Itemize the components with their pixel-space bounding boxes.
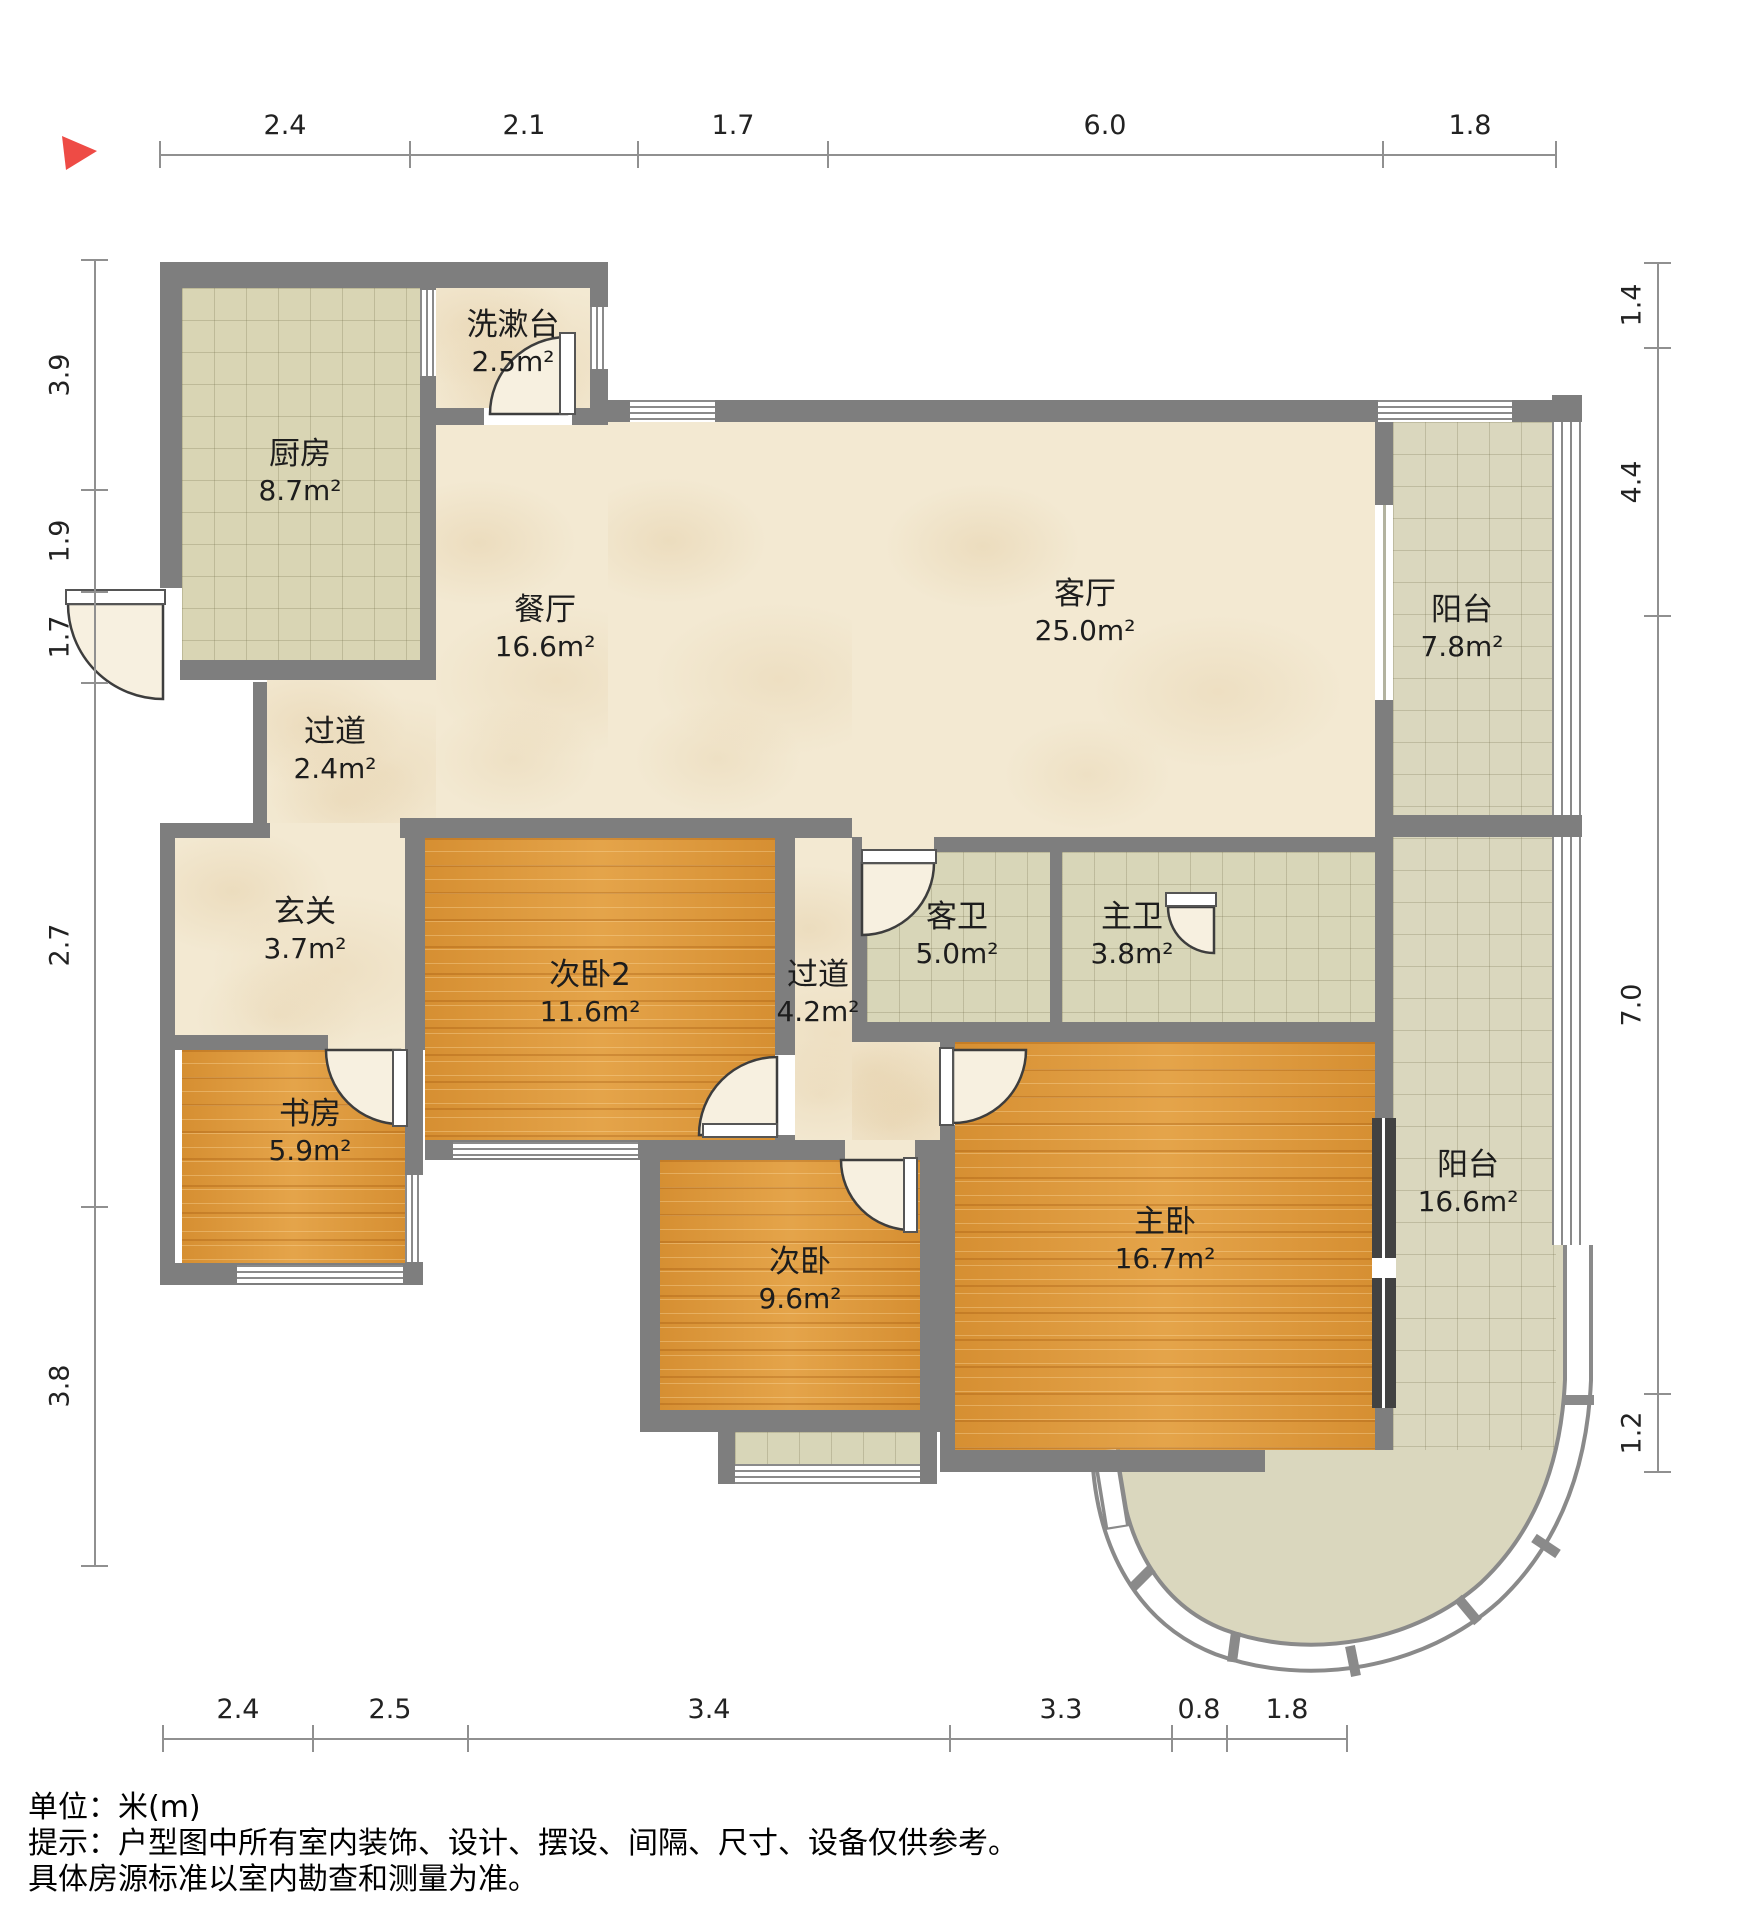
room-area: 2.4m² — [293, 752, 376, 786]
dim-label: 1.7 — [45, 616, 76, 659]
dim-tick — [1555, 141, 1557, 168]
dim-tick — [81, 1565, 108, 1567]
room-name: 书房 — [268, 1096, 351, 1134]
dim-label: 1.8 — [1266, 1694, 1309, 1725]
master-bath-door-swing — [1168, 907, 1214, 953]
room-area: 8.7m² — [258, 474, 341, 508]
dim-tick — [159, 141, 161, 168]
dim-tick — [1382, 141, 1384, 168]
room-area: 2.5m² — [467, 345, 560, 379]
room-area: 7.8m² — [1420, 630, 1503, 664]
room-area: 5.9m² — [268, 1134, 351, 1168]
dim-label: 6.0 — [1084, 110, 1127, 141]
dim-label: 1.9 — [45, 520, 76, 563]
dim-tick — [81, 1206, 108, 1208]
room-name: 洗漱台 — [467, 307, 560, 345]
dim-label: 1.2 — [1617, 1412, 1648, 1455]
dim-tick — [81, 259, 108, 261]
dim-line-left — [94, 260, 96, 1566]
room-area: 16.7m² — [1115, 1242, 1216, 1276]
dim-tick — [81, 682, 108, 684]
bedroom-door-leaf — [904, 1158, 917, 1232]
dim-label: 3.8 — [45, 1365, 76, 1408]
dim-tick — [81, 489, 108, 491]
room-label-guest-bath: 客卫 5.0m² — [915, 899, 998, 971]
room-label-master-bedroom: 主卧 16.7m² — [1115, 1204, 1216, 1276]
dim-line-top — [160, 154, 1556, 156]
room-name: 厨房 — [258, 436, 341, 474]
compass-icon — [62, 136, 97, 170]
room-label-balcony-top: 阳台 7.8m² — [1420, 592, 1503, 664]
dim-label: 2.7 — [45, 924, 76, 967]
dim-tick — [1171, 1725, 1173, 1752]
room-name: 次卧 — [758, 1244, 841, 1282]
bedroom-door-swing — [841, 1160, 911, 1230]
room-name: 阳台 — [1420, 592, 1503, 630]
dim-tick — [637, 141, 639, 168]
dim-label: 2.4 — [264, 110, 307, 141]
room-area: 11.6m² — [540, 995, 641, 1029]
bedroom2-door-leaf — [703, 1124, 777, 1137]
dim-label: 2.4 — [217, 1694, 260, 1725]
washroom-door-leaf — [560, 333, 575, 414]
master-door-swing — [953, 1050, 1026, 1123]
room-area: 3.8m² — [1090, 937, 1173, 971]
room-area: 9.6m² — [758, 1282, 841, 1316]
room-name: 过道 — [776, 957, 859, 995]
room-area: 4.2m² — [776, 995, 859, 1029]
dim-tick — [1644, 347, 1671, 349]
room-name: 客厅 — [1035, 576, 1136, 614]
dim-tick — [312, 1725, 314, 1752]
dim-label: 3.3 — [1040, 1694, 1083, 1725]
study-door-leaf — [393, 1050, 407, 1126]
dim-tick — [1644, 1471, 1671, 1473]
room-area: 25.0m² — [1035, 614, 1136, 648]
dim-tick — [827, 141, 829, 168]
floorplan-canvas: 厨房 8.7m² 洗漱台 2.5m² 餐厅 16.6m² 客厅 25.0m² 阳… — [0, 0, 1757, 1920]
room-area: 16.6m² — [495, 630, 596, 664]
dim-tick — [467, 1725, 469, 1752]
room-label-washroom: 洗漱台 2.5m² — [467, 307, 560, 379]
dim-label: 7.0 — [1617, 984, 1648, 1027]
room-name: 客卫 — [915, 899, 998, 937]
dim-label: 0.8 — [1178, 1694, 1221, 1725]
room-label-study: 书房 5.9m² — [268, 1096, 351, 1168]
dim-label: 3.4 — [688, 1694, 731, 1725]
room-name: 次卧2 — [540, 957, 641, 995]
room-area: 16.6m² — [1418, 1185, 1519, 1219]
room-label-kitchen: 厨房 8.7m² — [258, 436, 341, 508]
dim-label: 1.7 — [712, 110, 755, 141]
room-area: 3.7m² — [263, 932, 346, 966]
dim-tick — [949, 1725, 951, 1752]
room-name: 过道 — [293, 714, 376, 752]
dim-line-bottom — [163, 1738, 1347, 1740]
room-label-corridor1: 过道 2.4m² — [293, 714, 376, 786]
dim-label: 1.8 — [1449, 110, 1492, 141]
room-label-bedroom: 次卧 9.6m² — [758, 1244, 841, 1316]
dim-tick — [1644, 1393, 1671, 1395]
dim-tick — [1644, 615, 1671, 617]
room-label-bedroom2: 次卧2 11.6m² — [540, 957, 641, 1029]
room-label-corridor2: 过道 4.2m² — [776, 957, 859, 1029]
dim-label: 4.4 — [1617, 461, 1648, 504]
dim-tick — [1226, 1725, 1228, 1752]
dim-tick — [1644, 262, 1671, 264]
dim-tick — [1346, 1725, 1348, 1752]
room-name: 主卧 — [1115, 1204, 1216, 1242]
room-name: 阳台 — [1418, 1147, 1519, 1185]
room-name: 玄关 — [263, 894, 346, 932]
entry-door-swing — [68, 604, 163, 699]
room-label-master-bath: 主卫 3.8m² — [1090, 899, 1173, 971]
room-label-foyer: 玄关 3.7m² — [263, 894, 346, 966]
room-label-dining: 餐厅 16.6m² — [495, 592, 596, 664]
dim-label: 3.9 — [45, 354, 76, 397]
footer-tip-note2: 具体房源标准以室内勘查和测量为准。 — [28, 1854, 538, 1898]
room-name: 餐厅 — [495, 592, 596, 630]
dim-tick — [81, 591, 108, 593]
dim-tick — [162, 1725, 164, 1752]
dim-label: 2.1 — [503, 110, 546, 141]
dim-tick — [409, 141, 411, 168]
dim-label: 1.4 — [1617, 284, 1648, 327]
dim-line-right — [1657, 263, 1659, 1472]
room-label-balcony-bottom: 阳台 16.6m² — [1418, 1147, 1519, 1219]
room-name: 主卫 — [1090, 899, 1173, 937]
dim-label: 2.5 — [369, 1694, 412, 1725]
guest-bath-door-leaf — [862, 850, 936, 863]
master-door-leaf — [940, 1048, 953, 1125]
room-label-living: 客厅 25.0m² — [1035, 576, 1136, 648]
room-area: 5.0m² — [915, 937, 998, 971]
